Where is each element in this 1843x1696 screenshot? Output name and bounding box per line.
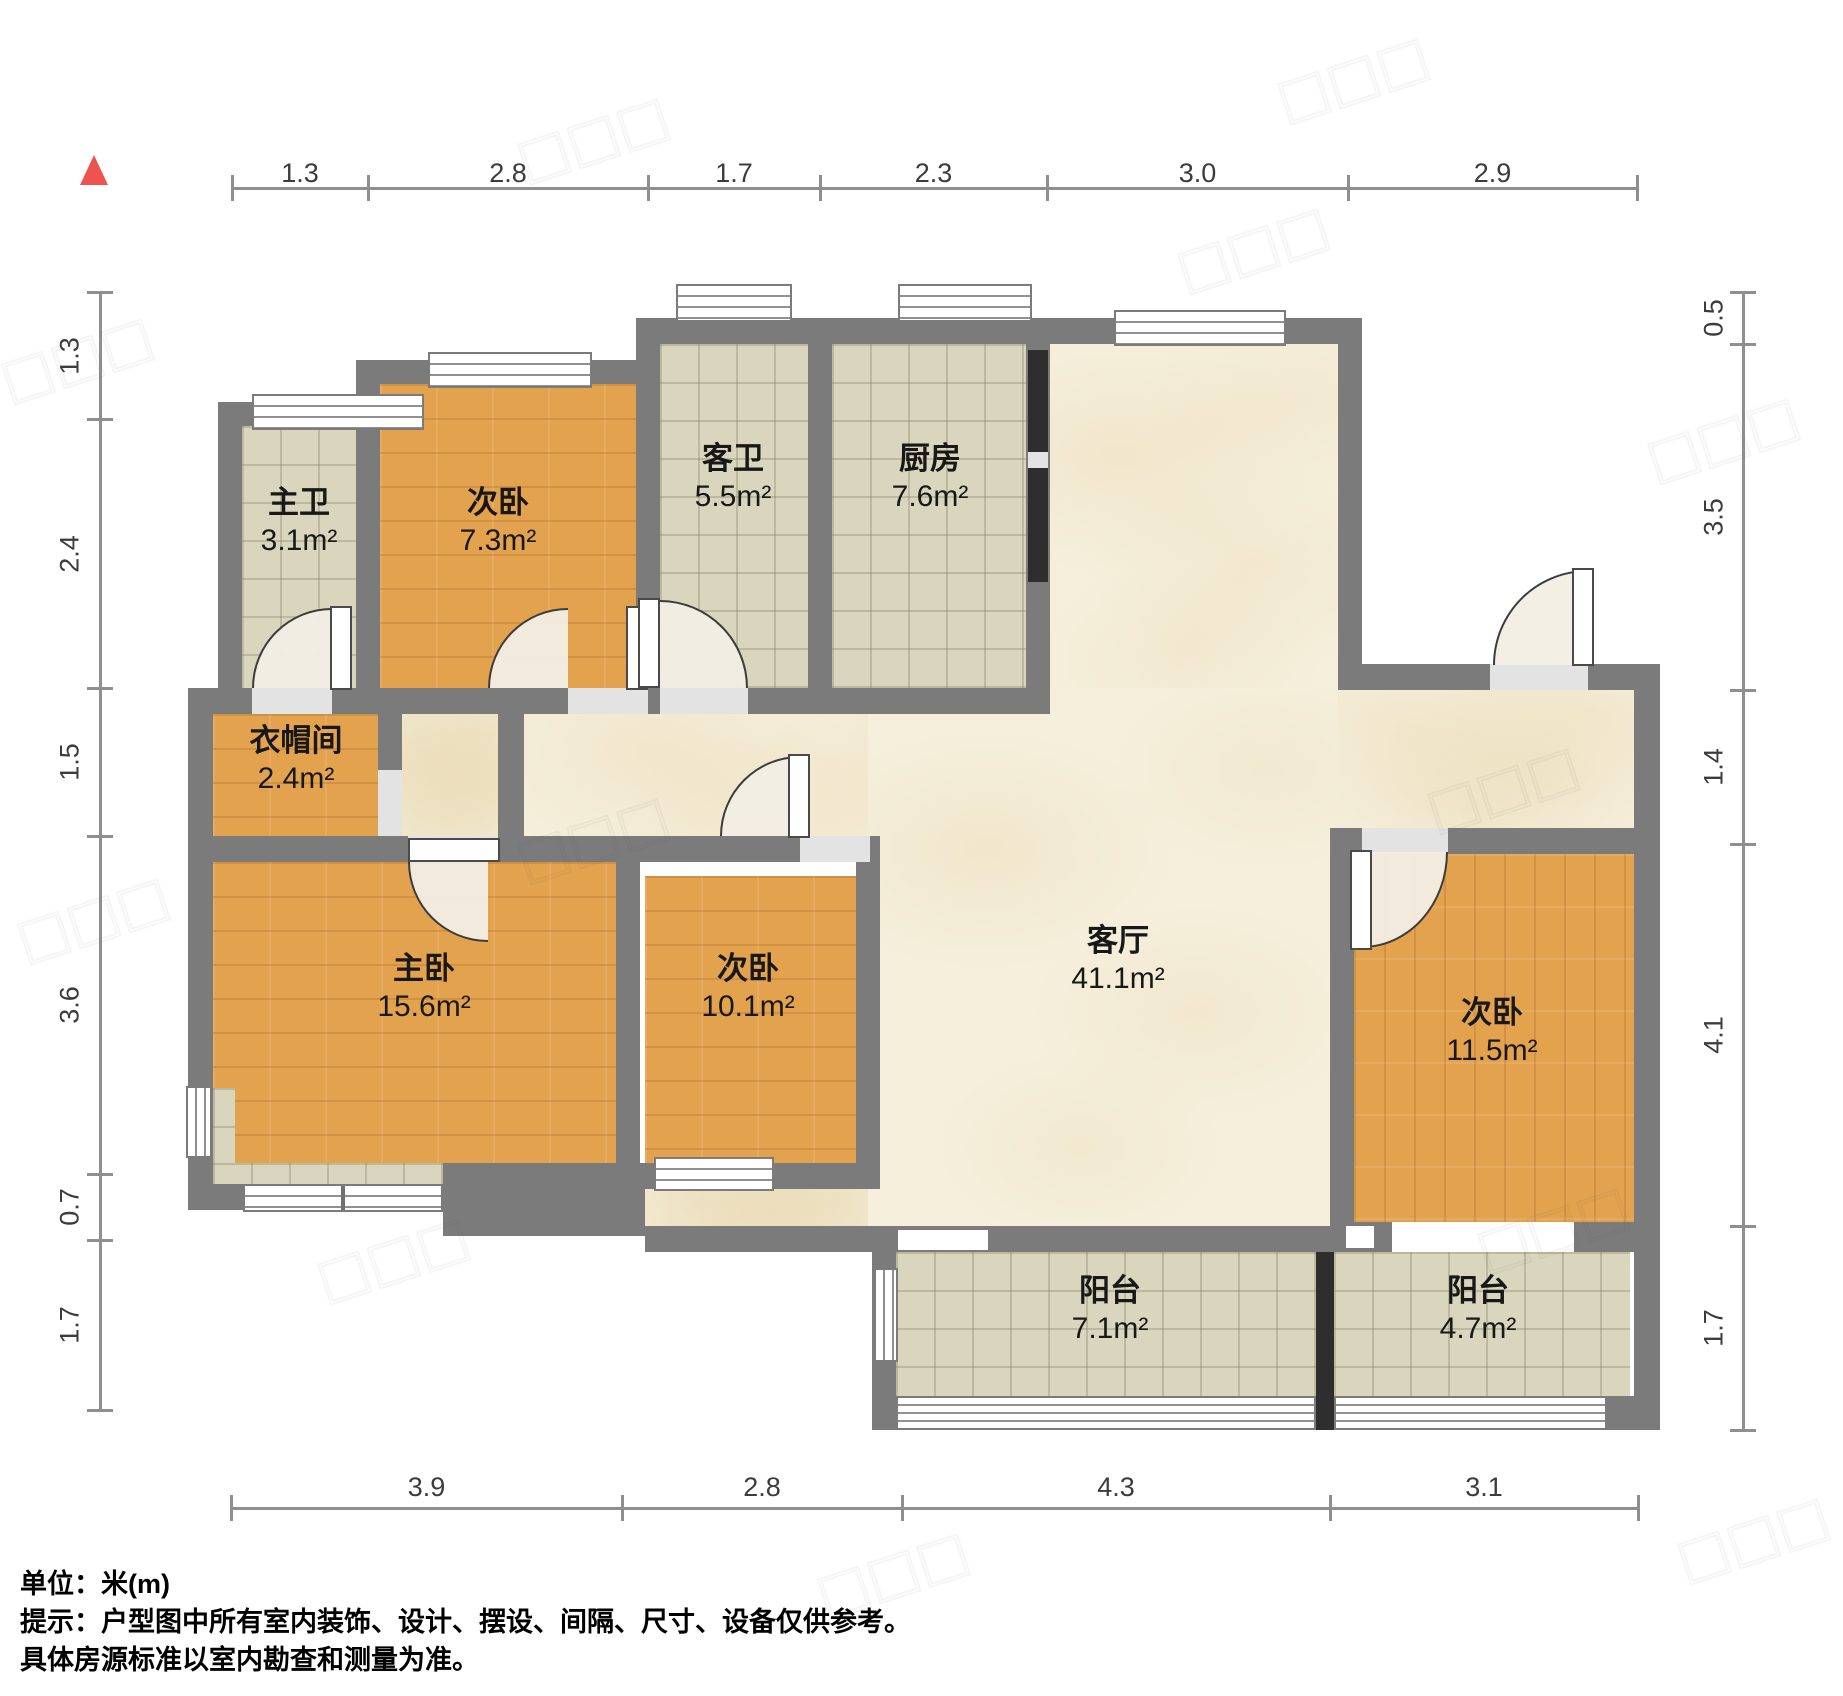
wall: [188, 1184, 243, 1210]
room-name: 阳台: [1440, 1272, 1517, 1310]
watermark: [1677, 1498, 1831, 1586]
sliding-partition: [1028, 350, 1048, 452]
dim-value-right: 4.1: [1699, 1016, 1730, 1054]
dim-value-right: 3.5: [1699, 498, 1730, 536]
room-label-yangtai-4-7: 阳台4.7m²: [1440, 1272, 1517, 1348]
wall: [443, 1184, 468, 1210]
dim-tick: [1347, 175, 1350, 201]
wall: [498, 714, 524, 836]
window: [1334, 1396, 1607, 1430]
room-area: 10.1m²: [701, 988, 794, 1026]
room-name: 主卫: [261, 484, 338, 522]
room-name: 客卫: [695, 440, 772, 478]
door-opening: [378, 770, 402, 836]
north-arrow-icon: [80, 155, 108, 185]
door-leaf: [788, 754, 810, 838]
dim-value-left: 1.5: [55, 743, 86, 781]
sliding-partition: [1316, 1252, 1334, 1430]
dim-value-left: 1.7: [55, 1306, 86, 1344]
dim-value-bottom: 3.9: [408, 1472, 446, 1503]
dim-line-left: [99, 292, 102, 1410]
dim-tick: [1730, 1225, 1756, 1228]
room-name: 次卧: [701, 950, 794, 988]
wall: [443, 1163, 645, 1236]
room-area: 4.7m²: [1440, 1310, 1517, 1348]
dim-tick: [621, 1495, 624, 1521]
room-area: 15.6m²: [377, 988, 470, 1026]
room-name: 厨房: [892, 440, 969, 478]
floor-tile: [213, 1163, 445, 1186]
room-label-ciwo-10-1: 次卧10.1m²: [701, 950, 794, 1026]
room-area: 2.4m²: [250, 760, 343, 798]
wall: [1634, 664, 1660, 1430]
dim-value-right: 1.7: [1699, 1309, 1730, 1347]
disclaimer-line-2: 具体房源标准以室内勘查和测量为准。: [20, 1638, 479, 1677]
door-leaf: [408, 838, 500, 862]
dim-tick: [87, 1173, 113, 1176]
window: [654, 1157, 774, 1191]
dim-tick: [87, 291, 113, 294]
dim-value-top: 2.3: [915, 158, 953, 189]
window: [1344, 1224, 1376, 1250]
dim-tick: [87, 418, 113, 421]
room-label-ciwo-11-5: 次卧11.5m²: [1446, 994, 1537, 1070]
wall: [748, 688, 1050, 714]
window: [898, 284, 1032, 322]
floor-tile: [832, 344, 1026, 688]
dim-tick: [87, 687, 113, 690]
window: [252, 394, 424, 430]
dim-value-left: 2.4: [55, 535, 86, 573]
room-name: 阳台: [1072, 1272, 1149, 1310]
window: [874, 1268, 898, 1362]
floor-marble: [402, 714, 498, 836]
room-area: 5.5m²: [695, 478, 772, 516]
watermark: [17, 878, 171, 966]
unit-note: 单位：米(m): [20, 1562, 170, 1601]
window: [186, 1086, 212, 1158]
door-leaf: [330, 606, 352, 690]
room-area: 7.1m²: [1072, 1310, 1149, 1348]
dim-value-bottom: 3.1: [1465, 1472, 1503, 1503]
sliding-partition: [1028, 468, 1048, 582]
dim-tick: [230, 1495, 233, 1521]
wall: [648, 688, 660, 714]
dim-tick: [231, 175, 234, 201]
door-leaf: [1350, 850, 1372, 950]
wall: [332, 688, 568, 714]
room-name: 次卧: [460, 484, 537, 522]
door-leaf: [1572, 568, 1594, 666]
door-opening: [252, 688, 332, 714]
dim-tick: [1637, 1495, 1640, 1521]
dim-value-bottom: 4.3: [1097, 1472, 1135, 1503]
room-label-yimaojian: 衣帽间2.4m²: [250, 722, 343, 798]
room-name: 客厅: [1071, 922, 1164, 960]
dim-value-top: 3.0: [1179, 158, 1217, 189]
door-opening: [1028, 452, 1048, 468]
dim-tick: [87, 1409, 113, 1412]
disclaimer-line-1: 提示：户型图中所有室内装饰、设计、摆设、间隔、尺寸、设备仅供参考。: [20, 1600, 911, 1639]
dim-line-bottom: [231, 1507, 1638, 1510]
wall: [1338, 664, 1490, 690]
wall: [856, 836, 880, 1186]
room-label-ciwo-7-3: 次卧7.3m²: [460, 484, 537, 560]
window: [243, 1184, 443, 1212]
dim-value-right: 1.4: [1699, 748, 1730, 786]
floor-marble: [1050, 344, 1338, 714]
dim-tick: [1730, 689, 1756, 692]
watermark: [1177, 208, 1331, 296]
door-opening: [660, 688, 748, 714]
dim-tick: [87, 835, 113, 838]
dim-tick: [647, 175, 650, 201]
dim-tick: [1730, 291, 1756, 294]
wall: [616, 836, 640, 1186]
dim-line-right: [1742, 292, 1745, 1430]
room-area: 7.3m²: [460, 522, 537, 560]
door-opening: [800, 836, 870, 862]
dim-tick: [1329, 1495, 1332, 1521]
room-area: 3.1m²: [261, 522, 338, 560]
room-name: 次卧: [1446, 994, 1537, 1032]
dim-tick: [1730, 843, 1756, 846]
dim-tick: [87, 1239, 113, 1242]
room-area: 41.1m²: [1071, 960, 1164, 998]
window: [428, 352, 592, 388]
wall: [808, 344, 832, 688]
watermark: [1277, 38, 1431, 126]
room-area: 11.5m²: [1446, 1032, 1537, 1070]
dim-value-top: 1.7: [715, 158, 753, 189]
watermark: [1, 318, 155, 406]
dim-tick: [1636, 175, 1639, 201]
dim-value-top: 2.8: [489, 158, 527, 189]
room-area: 7.6m²: [892, 478, 969, 516]
room-name: 衣帽间: [250, 722, 343, 760]
dim-value-right: 0.5: [1699, 299, 1730, 337]
room-label-zhuwei: 主卫3.1m²: [261, 484, 338, 560]
wall: [218, 402, 242, 714]
dim-tick: [901, 1495, 904, 1521]
dim-value-left: 3.6: [55, 986, 86, 1024]
room-label-chufang: 厨房7.6m²: [892, 440, 969, 516]
dim-value-top: 1.3: [281, 158, 319, 189]
dim-tick: [1730, 1429, 1756, 1432]
wall: [190, 836, 408, 862]
door-leaf: [638, 598, 660, 688]
dim-tick: [819, 175, 822, 201]
window: [896, 1228, 990, 1252]
floorplan-canvas: 主卫3.1m²次卧7.3m²客卫5.5m²厨房7.6m²衣帽间2.4m²主卧15…: [0, 0, 1843, 1696]
dim-tick: [1730, 343, 1756, 346]
door-opening: [1362, 828, 1448, 854]
door-opening: [1490, 664, 1588, 690]
watermark: [1647, 398, 1801, 486]
floor-marble: [645, 1189, 868, 1226]
window: [896, 1396, 1316, 1430]
dim-value-left: 0.7: [55, 1188, 86, 1226]
door-opening: [568, 688, 648, 714]
dim-value-top: 2.9: [1474, 158, 1512, 189]
room-label-keting: 客厅41.1m²: [1071, 922, 1164, 998]
window: [1114, 310, 1286, 346]
wall: [645, 1226, 896, 1252]
dim-tick: [367, 175, 370, 201]
watermark: [517, 98, 671, 186]
room-name: 主卧: [377, 950, 470, 988]
wall: [1338, 318, 1362, 668]
room-label-yangtai-7-1: 阳台7.1m²: [1072, 1272, 1149, 1348]
room-label-zhuwo: 主卧15.6m²: [377, 950, 470, 1026]
dim-value-bottom: 2.8: [743, 1472, 781, 1503]
room-label-kewei: 客卫5.5m²: [695, 440, 772, 516]
dim-tick: [1046, 175, 1049, 201]
watermark: [317, 1218, 471, 1306]
window: [676, 284, 792, 322]
